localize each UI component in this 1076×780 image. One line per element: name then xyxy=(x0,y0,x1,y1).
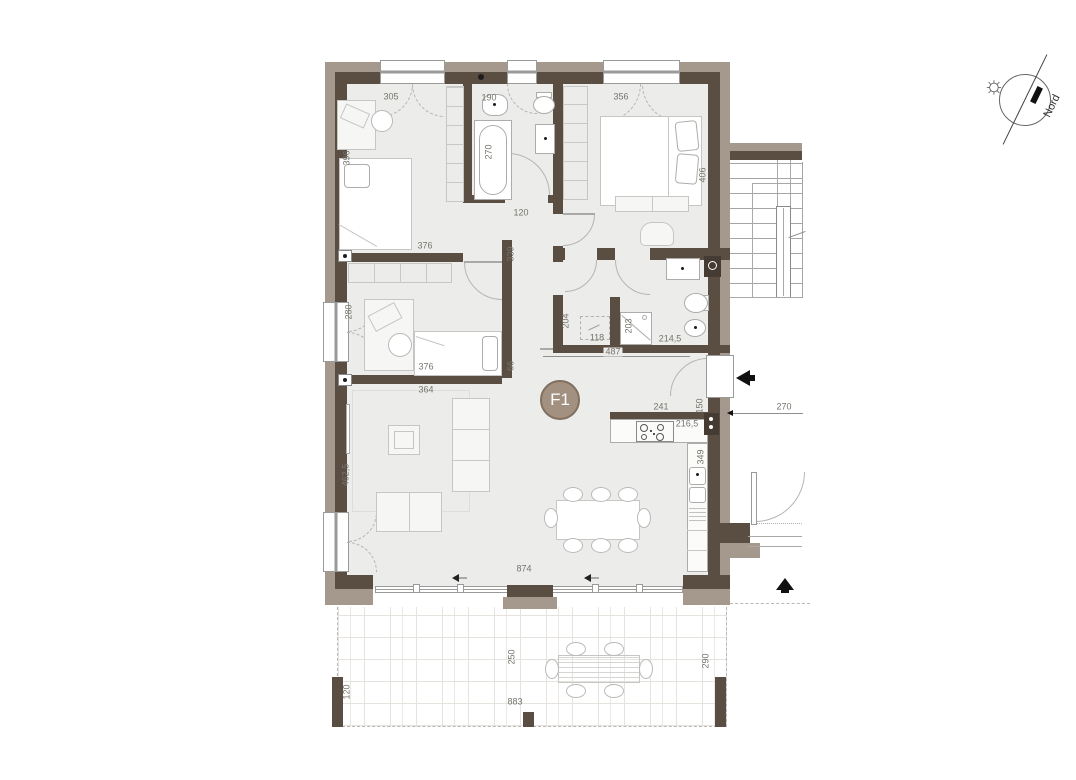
column-dot xyxy=(343,254,347,258)
wall-segment xyxy=(548,195,553,203)
stair-line xyxy=(790,160,791,207)
dim-label: 356 xyxy=(613,93,628,102)
dim-label: 874 xyxy=(516,565,531,574)
dining-table xyxy=(556,500,640,540)
burner xyxy=(640,424,648,432)
burner xyxy=(641,434,647,440)
wall-segment xyxy=(720,523,750,543)
dim-label: 66 xyxy=(507,361,516,371)
entry-arrow-icon xyxy=(776,578,794,590)
terrace-paving xyxy=(337,607,727,727)
stair-line xyxy=(730,297,802,298)
sofa-section xyxy=(452,398,490,492)
sofa-section xyxy=(376,492,442,532)
slide-arrow-tail xyxy=(459,577,467,579)
washing-machine-drum xyxy=(708,261,717,270)
burner xyxy=(656,433,664,441)
wardrobe xyxy=(446,86,464,202)
wall-segment xyxy=(325,589,373,605)
window-mullion xyxy=(413,584,420,593)
entrance-door-opening xyxy=(706,355,734,398)
property-dash-line xyxy=(730,603,810,605)
door-leaf xyxy=(563,213,595,215)
sun-icon: ☼ xyxy=(983,74,1005,98)
wall-segment xyxy=(557,248,565,260)
entry-arrow-tail xyxy=(750,375,755,381)
wall-segment xyxy=(730,143,802,151)
dining-chair xyxy=(591,487,611,502)
pillow xyxy=(674,120,699,152)
column-dot xyxy=(343,378,347,382)
dish-rack xyxy=(689,505,706,521)
dim-label: 150 xyxy=(696,398,705,413)
terrace-chair xyxy=(545,659,559,679)
faucet-dot xyxy=(694,326,697,329)
wall-segment xyxy=(507,585,553,597)
column-dot xyxy=(478,74,484,80)
building-entry-door-leaf xyxy=(751,472,757,525)
dim-label: 120 xyxy=(513,209,528,218)
shower-head xyxy=(642,315,647,320)
wall-segment xyxy=(720,62,730,575)
dim-label: 270 xyxy=(776,403,791,412)
wardrobe xyxy=(563,86,588,200)
dimension-line xyxy=(727,413,803,414)
stair-line xyxy=(752,183,753,298)
pillow xyxy=(675,153,700,185)
dim-label: 120 xyxy=(343,684,352,699)
terrace-table xyxy=(558,655,640,683)
desk-chair xyxy=(371,110,393,132)
window xyxy=(323,512,349,572)
entry-step-line xyxy=(748,546,802,547)
wall-segment xyxy=(335,575,373,589)
bed-line xyxy=(668,117,669,205)
entry-arrow-tail xyxy=(781,590,789,593)
dim-label: 270 xyxy=(485,144,494,159)
slide-arrow-tail xyxy=(591,577,599,579)
faucet-dot xyxy=(544,137,547,140)
toilet xyxy=(533,96,555,114)
dim-label: 204 xyxy=(562,313,571,328)
cabinet-line xyxy=(687,550,708,551)
window-mullion xyxy=(457,584,464,593)
window xyxy=(380,60,445,84)
entry-arrow-icon xyxy=(736,370,750,386)
wall-segment xyxy=(463,84,472,203)
dining-chair xyxy=(544,508,558,528)
unit-dot xyxy=(709,417,713,421)
cabinet-line xyxy=(687,530,708,531)
dim-label: 349 xyxy=(697,449,706,464)
wall-segment xyxy=(610,297,620,352)
dim-label: 396 xyxy=(343,150,352,165)
pillow xyxy=(482,336,498,371)
dim-label: 487 xyxy=(603,348,622,357)
dim-label: 339 xyxy=(507,246,516,261)
dim-label: 280 xyxy=(345,304,354,319)
dim-label: 241 xyxy=(653,403,668,412)
dining-chair xyxy=(637,508,651,528)
dining-chair xyxy=(563,538,583,553)
wall-segment xyxy=(730,151,802,160)
dim-label: 364 xyxy=(418,386,433,395)
window xyxy=(507,60,537,84)
window-mullion xyxy=(636,584,643,593)
slide-arrow-icon xyxy=(584,574,591,582)
wall-jamb xyxy=(540,348,553,350)
terrace-chair xyxy=(604,684,624,698)
stair-line xyxy=(777,160,778,207)
wall-segment xyxy=(553,345,730,353)
faucet-dot xyxy=(696,473,699,476)
unit-badge: F1 xyxy=(540,380,580,420)
wall-segment xyxy=(683,575,730,589)
dim-label: 883 xyxy=(507,698,522,707)
bathtub-inner xyxy=(479,125,507,195)
dim-label: 305 xyxy=(383,93,398,102)
wall-segment xyxy=(597,248,615,260)
kitchen-sink-basin xyxy=(689,467,706,485)
floor-plan: 305 190 356 396 270 406 120 376 339 280 … xyxy=(0,0,1076,780)
dim-label: 290 xyxy=(702,653,711,668)
unit-dot xyxy=(709,425,713,429)
tv-panel xyxy=(346,404,350,454)
stove-dot xyxy=(650,430,652,432)
coffee-table-inner xyxy=(394,431,414,449)
wardrobe-row xyxy=(348,263,452,283)
dim-label: 118 xyxy=(590,334,604,343)
dim-label: 462,5 xyxy=(342,464,351,487)
terrace-chair xyxy=(639,659,653,679)
wall-segment xyxy=(503,597,557,609)
window xyxy=(603,60,680,84)
kitchen-sink-basin xyxy=(689,487,706,503)
entry-step-line xyxy=(748,536,802,537)
pillow xyxy=(344,164,370,188)
dim-label: 190 xyxy=(481,94,496,103)
door-leaf xyxy=(464,261,502,263)
terrace-post xyxy=(715,677,726,727)
bench-line xyxy=(652,196,653,212)
dim-label: 406 xyxy=(699,167,708,182)
dining-chair xyxy=(618,487,638,502)
dim-label: 214,5 xyxy=(659,335,682,344)
dining-chair xyxy=(563,487,583,502)
wall-segment xyxy=(335,253,463,262)
dining-chair xyxy=(618,538,638,553)
terrace-post xyxy=(523,712,534,727)
burner xyxy=(657,424,664,431)
dining-chair xyxy=(591,538,611,553)
door-threshold xyxy=(757,523,802,525)
faucet-dot xyxy=(493,103,496,106)
faucet-dot xyxy=(681,267,684,270)
terrace-chair xyxy=(566,684,586,698)
stair-handrail-line xyxy=(783,208,784,296)
wall-segment xyxy=(708,72,720,575)
wall-segment xyxy=(335,375,502,384)
dim-label: 376 xyxy=(417,242,432,251)
slide-arrow-icon xyxy=(452,574,459,582)
dim-label: 216,5 xyxy=(676,420,699,429)
dim-label: 250 xyxy=(508,649,517,664)
toilet xyxy=(684,293,708,313)
pouf xyxy=(640,222,674,246)
dim-label: 376 xyxy=(418,363,433,372)
stove-dot xyxy=(653,433,655,435)
dim-label: 203 xyxy=(625,318,634,333)
window-mullion xyxy=(592,584,599,593)
desk-chair xyxy=(388,333,412,357)
dimension-tick xyxy=(727,410,733,416)
terrace-chair xyxy=(566,642,586,656)
terrace-chair xyxy=(604,642,624,656)
wall-segment xyxy=(683,589,730,605)
